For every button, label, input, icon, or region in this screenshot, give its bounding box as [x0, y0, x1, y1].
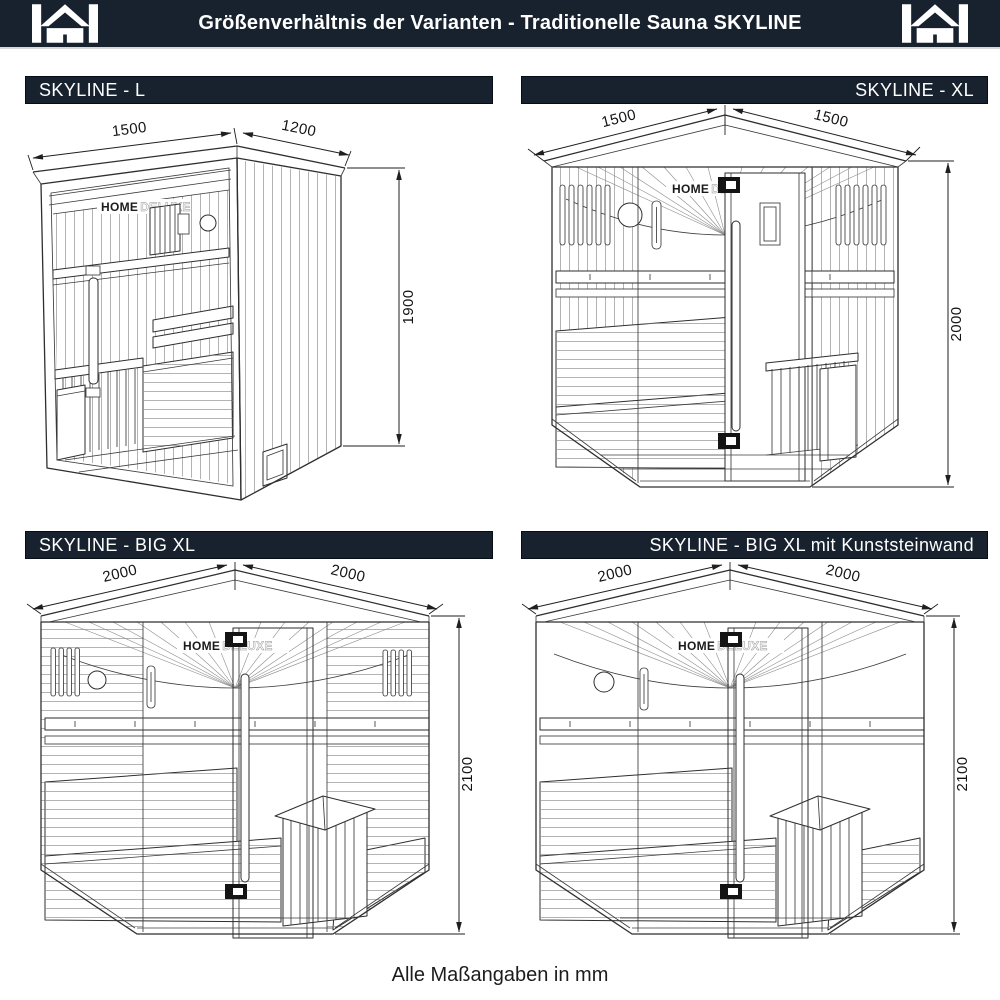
- variant-header-bigxl-stone: SKYLINE - BIG XL mit Kunststeinwand: [521, 531, 988, 559]
- svg-text:2000: 2000: [329, 562, 367, 586]
- svg-text:2000: 2000: [948, 307, 965, 342]
- heater-guard-box: [57, 385, 85, 460]
- page-title: Größenverhältnis der Varianten - Traditi…: [198, 12, 801, 35]
- sauna-drawing-bigxl: HOMEDELUXE: [25, 562, 480, 967]
- svg-text:1500: 1500: [600, 106, 638, 131]
- sensor: [147, 666, 155, 708]
- dimension-width: 2000: [27, 562, 227, 614]
- svg-text:2100: 2100: [954, 757, 971, 792]
- home-deluxe-logo-icon: [32, 2, 98, 45]
- variant-label: SKYLINE - L: [39, 80, 145, 101]
- door-handle: [736, 674, 744, 882]
- svg-text:1500: 1500: [111, 119, 148, 140]
- door-handle: [241, 674, 249, 882]
- vent: [263, 444, 287, 486]
- control-box: [760, 203, 780, 245]
- units-note: Alle Maßangaben in mm: [0, 964, 1000, 987]
- dimension-width: 2000: [522, 562, 722, 614]
- glass-door: [225, 628, 313, 938]
- variant-header-xl: SKYLINE - XL: [521, 76, 988, 104]
- svg-text:1200: 1200: [280, 117, 318, 141]
- door-handle: [732, 221, 740, 431]
- heater-box: [820, 365, 856, 461]
- svg-text:2000: 2000: [824, 562, 862, 586]
- variant-label: SKYLINE - BIG XL: [39, 535, 195, 556]
- variant-label: SKYLINE - XL: [855, 80, 974, 101]
- glass-door: [720, 628, 808, 938]
- sauna-light: [594, 672, 614, 692]
- sauna-light: [200, 215, 216, 231]
- sauna-drawing-l: HOMEDELUXE: [25, 108, 480, 528]
- door-handle: [89, 278, 98, 384]
- svg-text:2100: 2100: [459, 757, 476, 792]
- page-header: Größenverhältnis der Varianten - Traditi…: [0, 0, 1000, 49]
- infographic-canvas: Größenverhältnis der Varianten - Traditi…: [0, 0, 1000, 1000]
- sauna-drawing-xl: HOMEDELUXE: [520, 103, 975, 528]
- variant-header-l: SKYLINE - L: [25, 76, 493, 104]
- variant-header-bigxl: SKYLINE - BIG XL: [25, 531, 493, 559]
- dimension-depth: 2000: [243, 562, 443, 614]
- svg-text:2000: 2000: [101, 562, 139, 586]
- dimension-depth: 2000: [738, 562, 938, 614]
- svg-text:1900: 1900: [400, 290, 417, 325]
- sensor: [652, 201, 661, 249]
- bench-platform: [143, 352, 233, 452]
- sauna-light: [88, 671, 106, 689]
- variant-label: SKYLINE - BIG XL mit Kunststeinwand: [650, 535, 974, 556]
- sensor: [640, 668, 648, 710]
- glass-door: [718, 173, 805, 481]
- dimension-height: 1900: [343, 168, 417, 446]
- sauna-drawing-bigxl-stone: HOMEDELUXE: [520, 562, 975, 967]
- svg-text:2000: 2000: [596, 562, 634, 586]
- svg-text:1500: 1500: [812, 106, 850, 131]
- home-deluxe-logo-icon: [902, 2, 968, 45]
